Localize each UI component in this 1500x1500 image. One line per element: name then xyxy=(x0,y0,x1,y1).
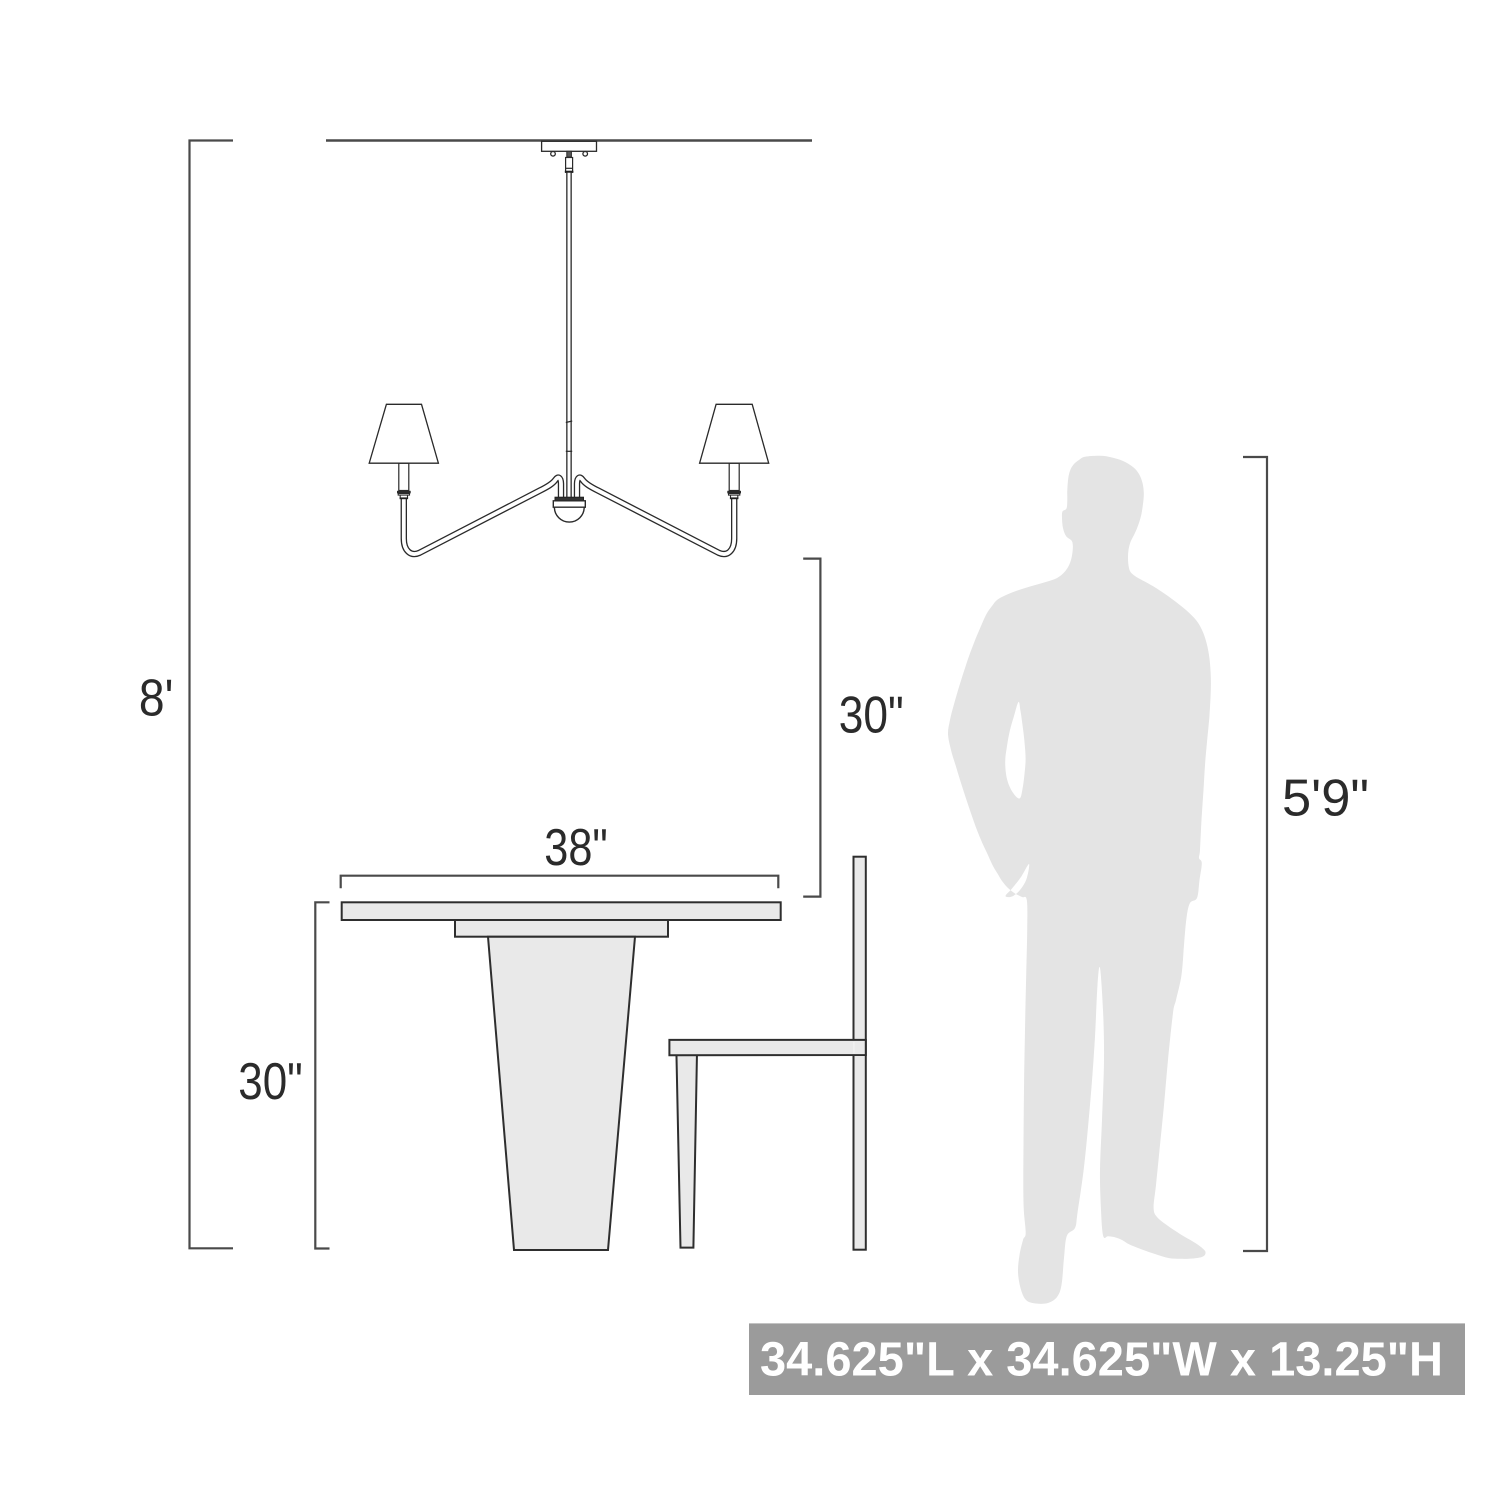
svg-text:30": 30" xyxy=(839,687,904,745)
svg-text:38": 38" xyxy=(544,819,608,877)
svg-text:5'9": 5'9" xyxy=(1282,770,1369,828)
svg-text:34.625"L x 34.625"W x 13.25"H: 34.625"L x 34.625"W x 13.25"H xyxy=(760,1334,1443,1387)
svg-text:8': 8' xyxy=(139,669,174,727)
svg-text:30": 30" xyxy=(238,1053,302,1111)
